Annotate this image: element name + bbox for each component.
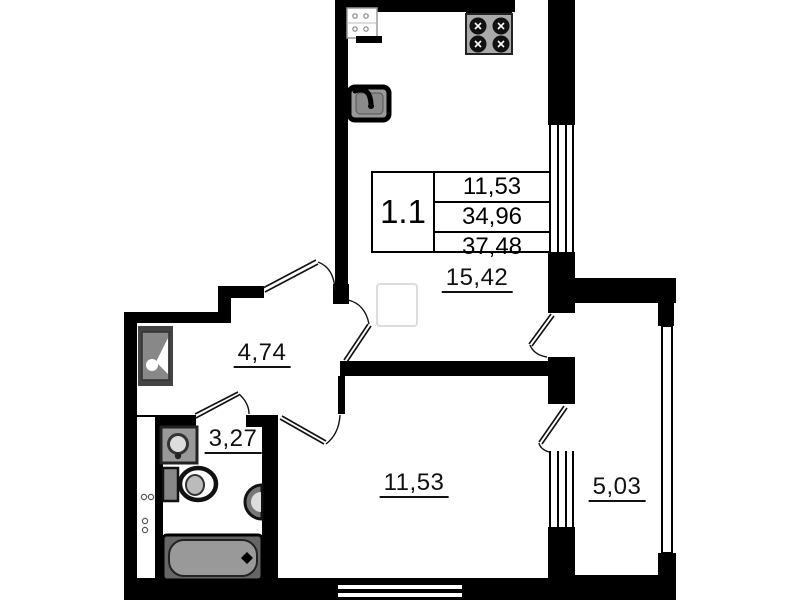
unit-area-row: 11,53 <box>435 173 549 203</box>
kitchen-sink-icon <box>349 87 389 120</box>
door-balcony-bedroom <box>539 406 567 452</box>
wardrobe-outline <box>377 284 417 326</box>
stove-icon <box>466 14 512 54</box>
unit-area-row: 37,48 <box>435 233 549 261</box>
window-living-room <box>548 125 575 252</box>
floor-plan: 1.1 11,53 34,96 37,48 15,42 4,74 3,27 11… <box>0 0 799 600</box>
door-bedroom <box>280 415 340 444</box>
bathtub-icon <box>163 535 262 580</box>
floor-plan-drawing <box>0 0 799 600</box>
window-bottom <box>338 578 462 600</box>
window-bedroom <box>548 451 575 527</box>
unit-number: 1.1 <box>373 173 435 251</box>
counter-appliance-icon <box>347 8 382 43</box>
water-heater-icon <box>245 485 262 519</box>
vent-shaft-icon <box>137 417 155 578</box>
room-area-hallway: 4,74 <box>234 340 291 368</box>
door-balcony-living <box>529 314 554 357</box>
toilet-icon <box>163 468 216 501</box>
room-area-bedroom: 11,53 <box>380 470 449 498</box>
unit-info-table: 1.1 11,53 34,96 37,48 <box>371 171 551 253</box>
walls <box>124 0 676 600</box>
door-kitchen-living <box>344 300 371 362</box>
room-area-bathroom: 3,27 <box>205 426 262 454</box>
balcony-glazing <box>662 326 672 553</box>
door-entrance <box>263 260 335 292</box>
hallway-washbasin-icon <box>138 326 173 386</box>
room-area-balcony: 5,03 <box>589 474 646 502</box>
door-bathroom <box>195 392 249 418</box>
unit-areas: 11,53 34,96 37,48 <box>435 173 549 251</box>
bathroom-washbasin-icon <box>161 427 197 463</box>
room-area-kitchen-living: 15,42 <box>442 265 513 293</box>
unit-area-row: 34,96 <box>435 203 549 233</box>
